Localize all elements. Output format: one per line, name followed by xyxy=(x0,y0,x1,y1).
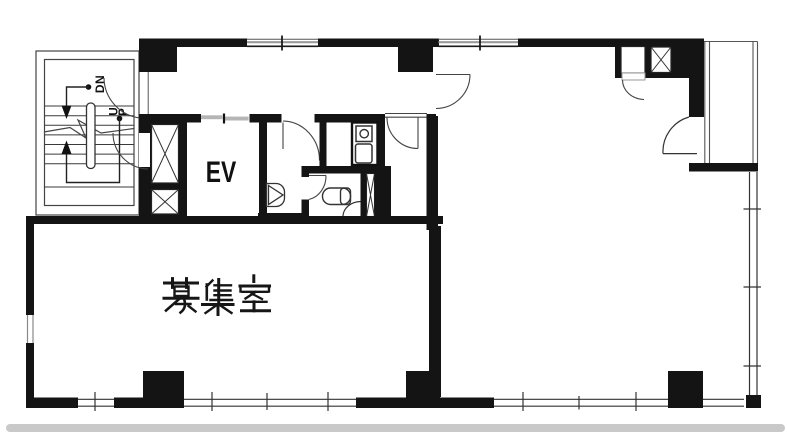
svg-text:EV: EV xyxy=(206,156,237,189)
svg-text:DN: DN xyxy=(93,75,107,93)
